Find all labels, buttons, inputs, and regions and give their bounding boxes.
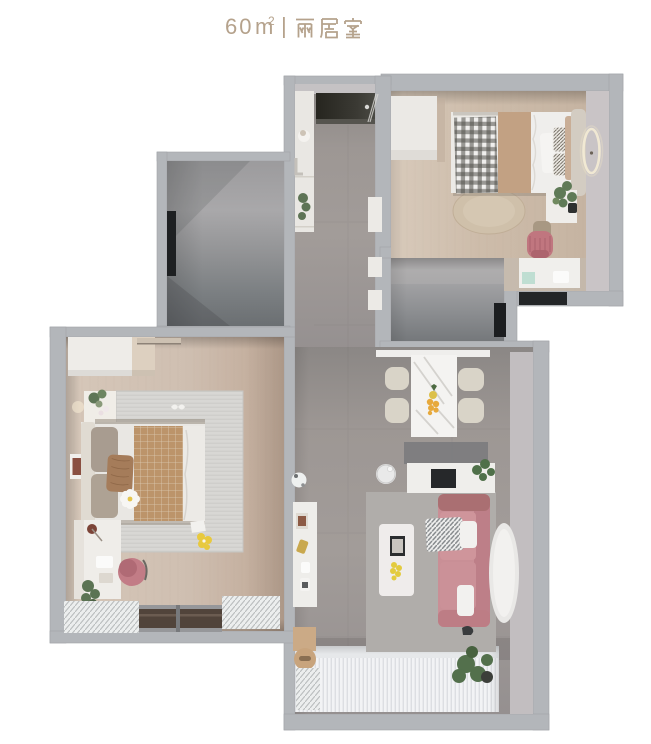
svg-text:2: 2 xyxy=(268,14,275,28)
svg-text:60: 60 xyxy=(225,14,253,39)
